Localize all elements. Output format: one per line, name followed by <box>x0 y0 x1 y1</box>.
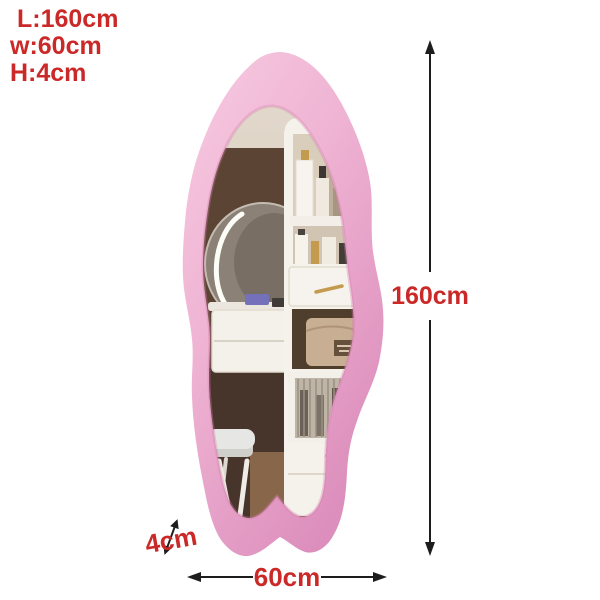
purple-box <box>245 294 269 305</box>
height-label: 160cm <box>391 282 469 310</box>
width-dimension: 60cm <box>187 562 387 592</box>
dark-item <box>272 298 285 307</box>
arrow-down-icon <box>425 542 435 556</box>
dropper-cap <box>319 166 326 178</box>
thickness-label: 4cm <box>143 521 199 560</box>
arrow-right-icon <box>373 572 387 582</box>
gold-vial <box>311 241 319 264</box>
wavy-mirror <box>183 52 384 556</box>
width-label: 60cm <box>254 562 321 592</box>
bottle-gold-cap <box>301 150 309 160</box>
dropper-bottle <box>316 178 329 218</box>
thickness-dimension: 4cm <box>143 518 199 560</box>
tube-cap-1 <box>298 229 305 235</box>
cosmetic-bottle-white <box>296 160 313 218</box>
handbag-label-text2 <box>339 350 349 352</box>
height-dimension: 160cm <box>391 40 469 556</box>
product-image: L:160cm w:60cm H:4cm <box>0 0 600 600</box>
handbag-label-text <box>337 345 351 347</box>
tube-white-2 <box>322 237 336 264</box>
mirror-illustration: 160cm 60cm 4cm <box>0 0 600 600</box>
tube-white-1 <box>295 234 308 264</box>
